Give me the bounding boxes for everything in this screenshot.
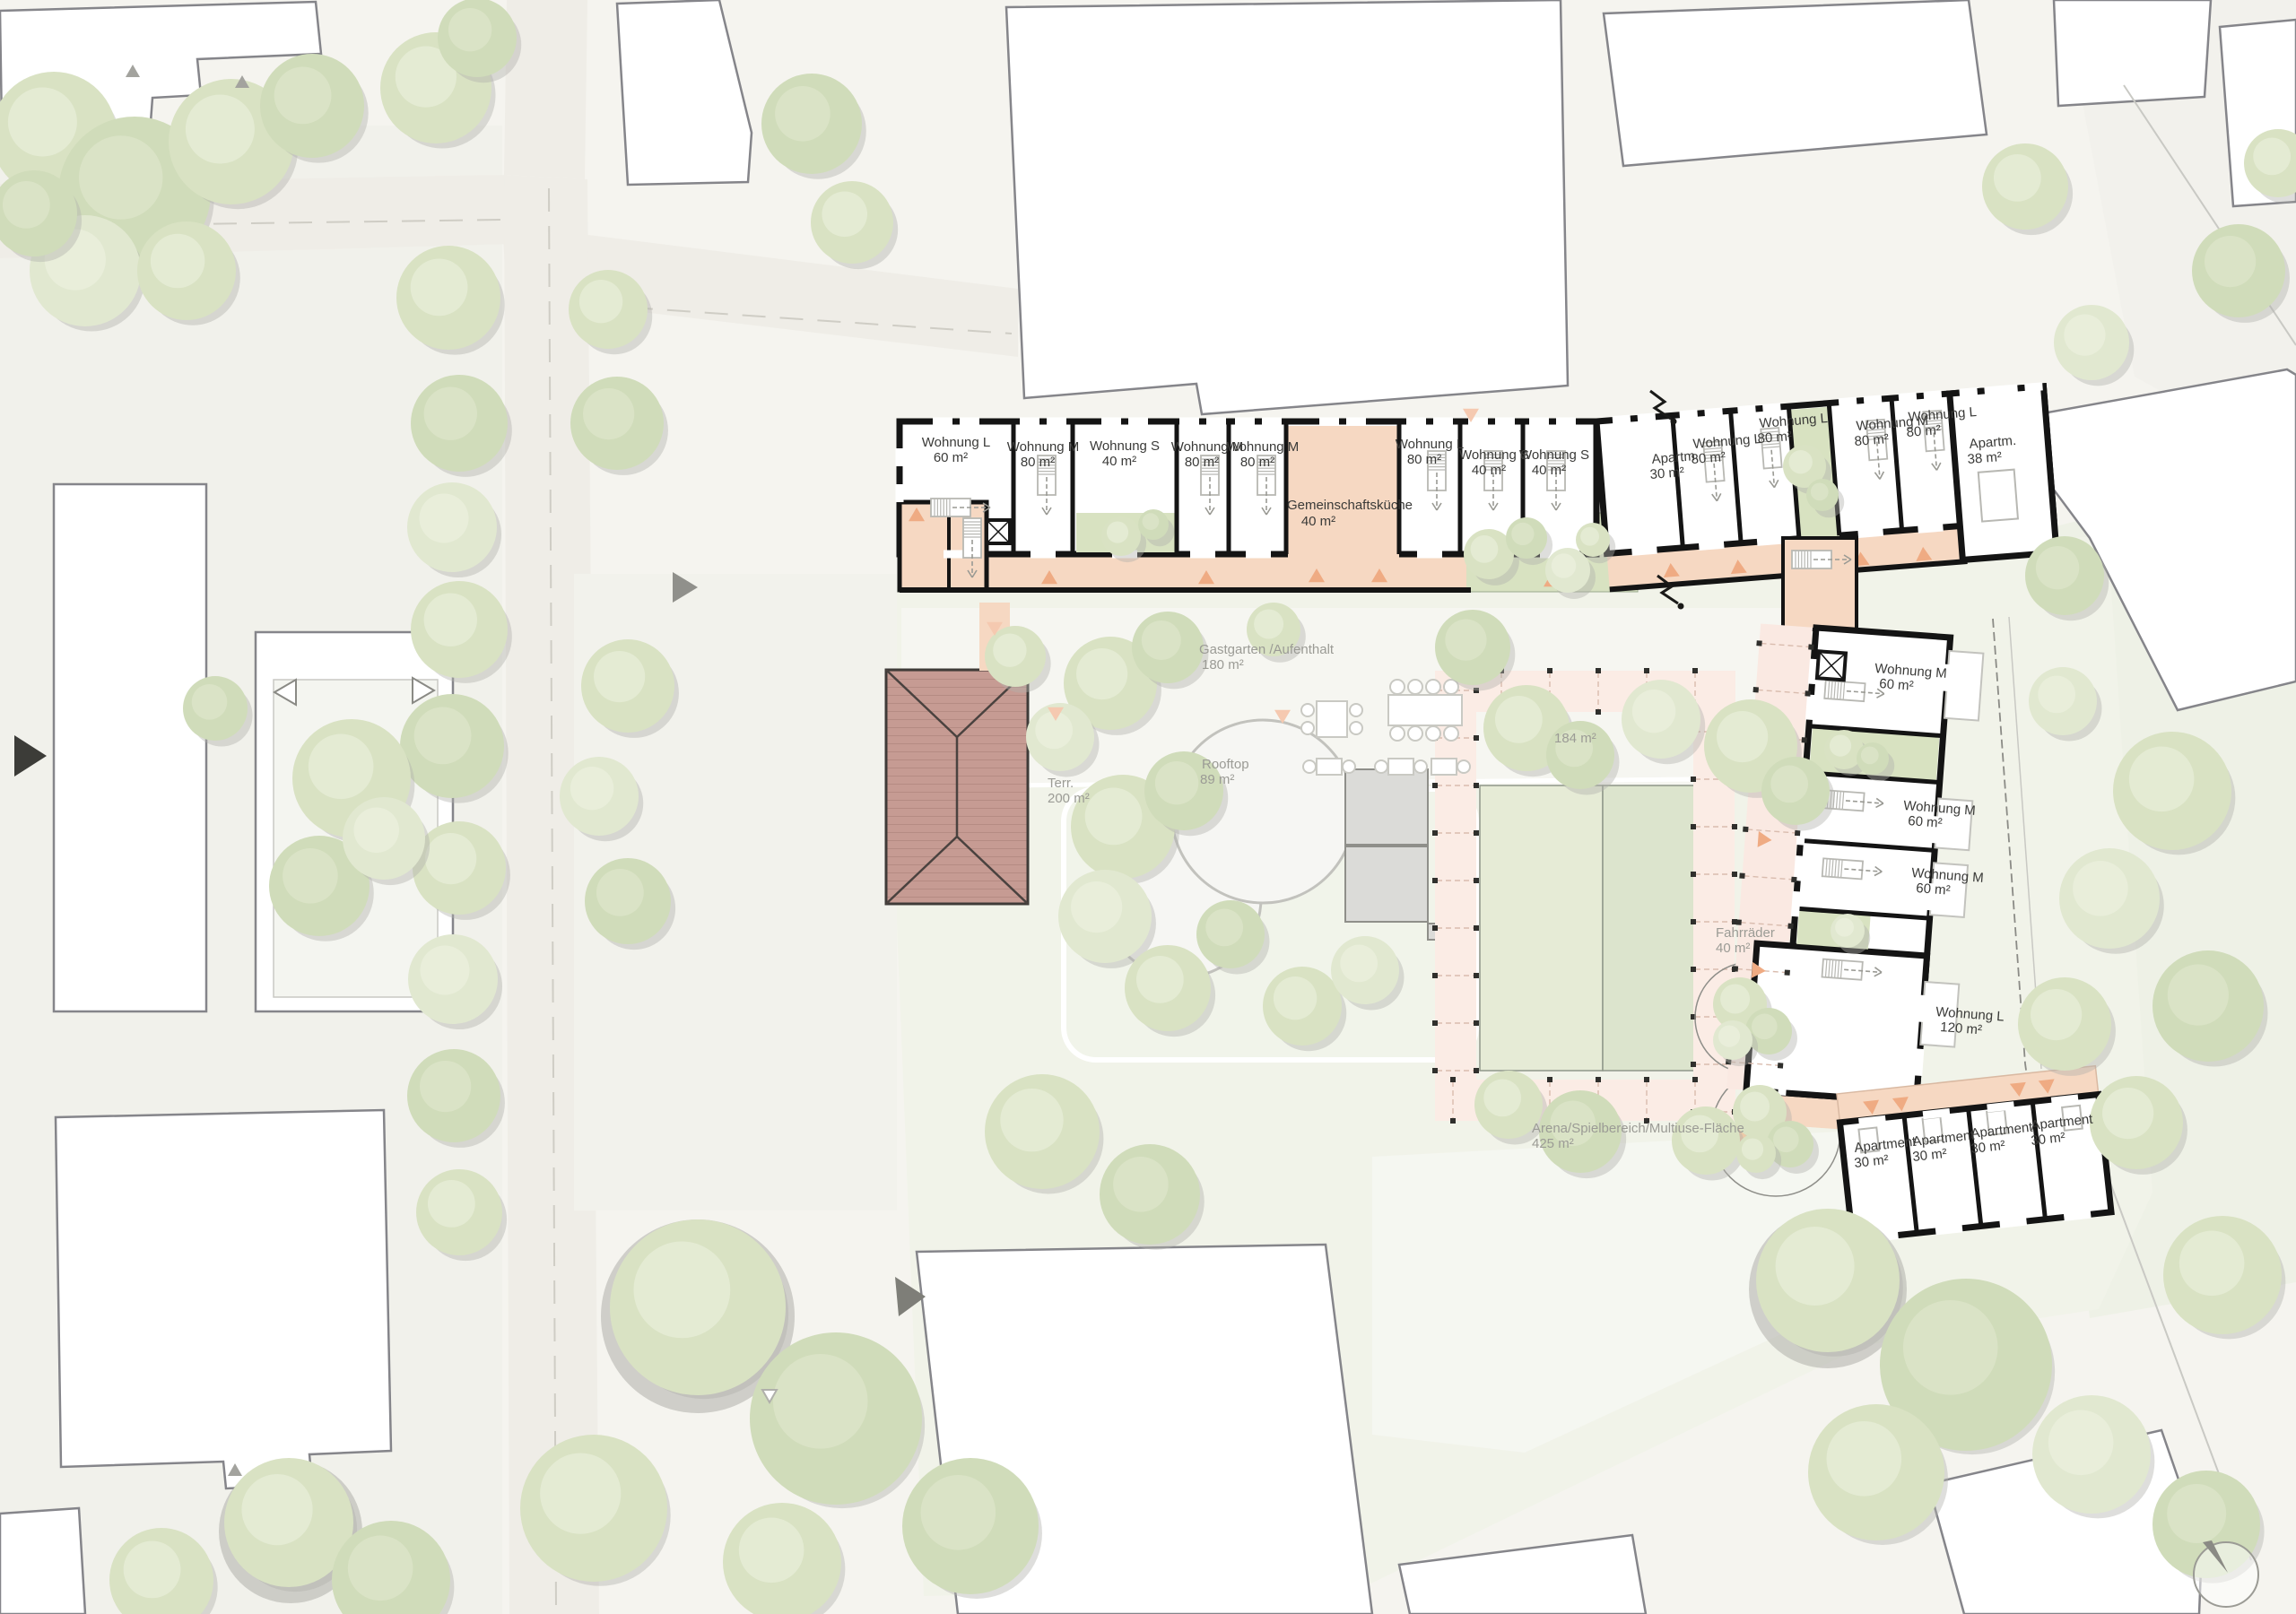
trellis-post (1691, 1062, 1696, 1067)
trellis-post (1778, 1063, 1783, 1068)
unit-area: 60 m² (934, 450, 968, 465)
trellis-post (1450, 1118, 1456, 1124)
trellis-post (1785, 969, 1790, 975)
window (2025, 386, 2043, 388)
trellis-post (1547, 1077, 1552, 1082)
trellis-post (1474, 735, 1479, 741)
trellis-post (1808, 644, 1813, 649)
site-label: Gastgarten /Aufenthalt (1199, 642, 1335, 657)
trellis-post (1739, 872, 1744, 878)
window (1864, 399, 1882, 401)
north-indicator (2194, 1540, 2258, 1607)
window (1705, 412, 1723, 413)
trellis-post (1596, 668, 1601, 673)
window (1923, 1113, 1950, 1115)
window (1782, 1071, 1784, 1096)
window (1613, 419, 1631, 421)
context-building (0, 1508, 85, 1614)
site-label-area: 89 m² (1200, 772, 1234, 787)
unit-label: Wohnung L (922, 435, 990, 450)
trellis-post (1432, 830, 1438, 836)
window (2064, 1214, 2091, 1217)
trellis-post (1547, 668, 1552, 673)
trellis-post (1732, 872, 1737, 877)
site-label: Terr. (1048, 776, 1074, 791)
window (1922, 995, 1924, 1022)
site-plan-canvas: Wohnung L 60 m² Wohnung M 80 m² Wohnung … (0, 0, 2296, 1614)
window (1699, 544, 1724, 546)
window (1757, 540, 1782, 542)
window (1899, 396, 1917, 398)
site-label-area: 40 m² (1716, 941, 1750, 956)
window (1680, 413, 1698, 415)
trellis-post (1644, 668, 1649, 673)
trellis-post (1753, 687, 1759, 692)
trellis-post (1691, 919, 1696, 924)
unit-area: 80 m² (1854, 431, 1890, 449)
unit-area: 80 m² (1240, 455, 1274, 470)
trellis-post (1787, 924, 1793, 929)
trellis-post (1691, 824, 1696, 829)
window (1918, 1049, 1920, 1076)
unit-label: Wohnung L (1396, 437, 1464, 452)
unit-area: 30 m² (1649, 464, 1685, 482)
trellis-post (1450, 1077, 1456, 1082)
trellis-post (1733, 966, 1738, 971)
trellis-post (1596, 709, 1601, 715)
trellis-post (1432, 783, 1438, 788)
window (2051, 1098, 2078, 1101)
site-label-area: 425 m² (1532, 1136, 1574, 1151)
context-building (1006, 0, 1568, 414)
trellis-post (1474, 783, 1479, 788)
window (1924, 395, 1942, 396)
window (1839, 401, 1857, 403)
window (1795, 891, 1796, 916)
trellis-post (1644, 1077, 1649, 1082)
unit-label: Gemeinschaftsküche (1287, 498, 1413, 513)
trellis-post (1474, 1020, 1479, 1026)
trellis-post (1432, 973, 1438, 978)
trellis-post (1474, 973, 1479, 978)
window (1812, 659, 1813, 684)
unit-area: 80 m² (1906, 422, 1942, 440)
unit-area: 40 m² (1102, 454, 1136, 469)
trellis-post (1756, 640, 1761, 646)
trellis-post (1596, 1077, 1601, 1082)
trellis-post (1474, 1068, 1479, 1073)
trellis-post (1692, 668, 1698, 673)
unit-label: Wohnung S (1090, 438, 1160, 454)
section-marker-dot (1671, 419, 1677, 425)
window (1858, 532, 1883, 534)
unit-label: Wohnung M (1007, 439, 1080, 455)
unit-area: 80 m² (1407, 452, 1441, 467)
trellis-post (1432, 878, 1438, 883)
window (2000, 1221, 2027, 1224)
unit-area: 40 m² (1301, 514, 1335, 529)
trellis-post (1432, 1020, 1438, 1026)
window (1788, 976, 1790, 1002)
community-kitchen (1288, 426, 1399, 552)
unit-label: Wohnung M (1227, 439, 1300, 455)
trellis-post (1735, 919, 1741, 924)
unit-area: 80 m² (1691, 449, 1726, 467)
context-building (54, 484, 206, 1011)
trellis-post (1474, 830, 1479, 836)
unit-area: 40 m² (1532, 463, 1566, 478)
context-building (56, 1110, 391, 1488)
window (1935, 1228, 1962, 1231)
architectural-site-plan: Wohnung L 60 m² Wohnung M 80 m² Wohnung … (0, 0, 2296, 1614)
trellis-post (1691, 872, 1696, 877)
trellis-post (1691, 967, 1696, 972)
section-marker-dot (1678, 603, 1684, 610)
unit-label: Wohnung S (1519, 447, 1589, 463)
site-label: Arena/Spielbereich/Multiuse-Fläche (1532, 1121, 1744, 1136)
unit-area: 80 m² (1021, 455, 1055, 470)
site-label-area: 200 m² (1048, 791, 1090, 806)
trellis-post (1795, 830, 1800, 836)
window (1809, 695, 1811, 720)
trellis-post (1732, 824, 1737, 829)
window (1960, 392, 1978, 394)
unit-area: 40 m² (1472, 463, 1506, 478)
trellis-post (1802, 737, 1807, 742)
window (1632, 550, 1657, 551)
trellis-post (1805, 690, 1810, 696)
trellis-post (1432, 1068, 1438, 1073)
trellis-post (1692, 1077, 1698, 1082)
site-label-area: 184 m² (1554, 731, 1596, 746)
trellis-post (1691, 777, 1696, 782)
unit-area: 80 m² (1185, 455, 1219, 470)
context-building (2054, 0, 2211, 106)
unit-area: 60 m² (1879, 676, 1914, 694)
window (1762, 407, 1780, 409)
trellis-post (1432, 925, 1438, 931)
unit-area: 120 m² (1940, 1020, 1983, 1037)
window (1987, 1106, 2014, 1108)
unit-area: 60 m² (1908, 813, 1943, 831)
unit-area: 60 m² (1916, 881, 1951, 898)
window (1738, 409, 1756, 411)
window (1797, 855, 1799, 881)
trellis-post (1791, 877, 1796, 882)
unit-area: 38 m² (1967, 449, 2003, 467)
loggia (1979, 470, 2018, 522)
window (1859, 1119, 1886, 1122)
unit-area: 80 m² (1757, 429, 1793, 447)
window (1638, 417, 1656, 419)
site-label: Rooftop (1202, 757, 1249, 772)
trellis-post (1474, 925, 1479, 931)
window (2000, 388, 2018, 390)
site-label: Fahrräder (1716, 925, 1775, 941)
trellis-post (1474, 878, 1479, 883)
trellis-post (1743, 827, 1748, 832)
window (1918, 527, 1944, 529)
site-label-area: 180 m² (1202, 657, 1244, 672)
